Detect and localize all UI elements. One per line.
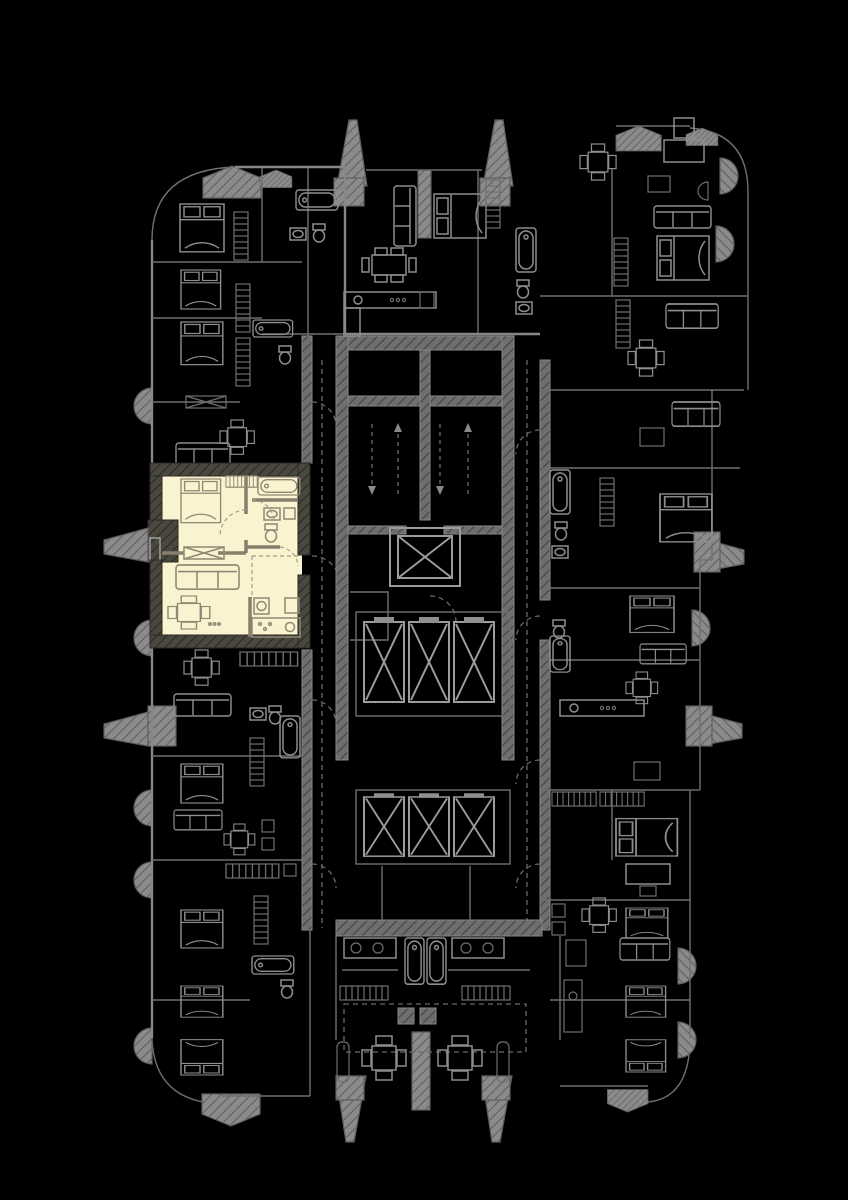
dining-table-icon bbox=[582, 898, 616, 932]
wardrobe-icon bbox=[340, 986, 388, 1000]
wardrobe-icon bbox=[600, 478, 614, 526]
elevator-icon bbox=[364, 617, 404, 702]
stove-burner bbox=[600, 706, 603, 709]
half-round-balcony-icon bbox=[720, 158, 738, 194]
door-swing-arc bbox=[516, 616, 540, 640]
balcony-fin-icon bbox=[483, 120, 513, 186]
stairwell-right bbox=[436, 423, 472, 495]
bed-icon bbox=[181, 322, 223, 365]
kitchen-sink-icon bbox=[354, 296, 362, 304]
sofa-icon bbox=[174, 694, 231, 716]
wardrobe-icon bbox=[552, 792, 596, 806]
stair-arrow-icon bbox=[368, 424, 376, 495]
kitchen-sink-icon bbox=[570, 704, 578, 712]
desk-chair-icon bbox=[640, 886, 656, 896]
corridor-wall bbox=[302, 650, 312, 930]
wardrobe-icon bbox=[600, 792, 644, 806]
washer-icon bbox=[262, 838, 274, 850]
sink-icon bbox=[351, 943, 361, 953]
wardrobe-icon bbox=[250, 738, 264, 786]
highlighted-apartment[interactable] bbox=[104, 463, 310, 648]
desk-icon bbox=[626, 864, 670, 884]
side-table-icon bbox=[640, 428, 664, 446]
kitchen-sink-icon bbox=[569, 992, 577, 1000]
sink-icon bbox=[483, 943, 493, 953]
kitchen-counter-icon bbox=[564, 980, 582, 1032]
corridor-wall bbox=[302, 336, 312, 463]
door-swing-arc bbox=[516, 864, 540, 888]
balcony-anchor-block bbox=[148, 520, 178, 562]
bed-icon bbox=[180, 204, 224, 252]
corridor-wall bbox=[540, 640, 550, 930]
core-bottom-wall bbox=[336, 920, 542, 936]
wardrobe-icon bbox=[234, 212, 248, 260]
bed-icon bbox=[630, 596, 674, 632]
bathtub-icon bbox=[405, 938, 424, 984]
bay-cap-icon bbox=[203, 166, 261, 198]
pier bbox=[418, 170, 431, 238]
balcony-fin-icon bbox=[104, 712, 148, 746]
half-round-balcony-icon bbox=[134, 1028, 152, 1064]
pier bbox=[398, 1008, 414, 1024]
sink-icon bbox=[516, 302, 532, 314]
sofa-icon bbox=[666, 304, 718, 328]
half-round-balcony-icon bbox=[134, 620, 152, 656]
sofa-icon bbox=[672, 402, 720, 426]
half-round-balcony-icon bbox=[678, 948, 696, 984]
elevator-icon bbox=[409, 617, 449, 702]
bathtub-icon bbox=[516, 228, 536, 272]
bay-cap-icon bbox=[260, 170, 292, 188]
fin-base bbox=[694, 532, 720, 572]
bay-cap-icon bbox=[607, 1090, 648, 1112]
toilet-icon bbox=[281, 980, 293, 998]
core-wall bbox=[336, 336, 514, 350]
half-round-balcony-icon bbox=[716, 226, 734, 262]
floor-plan-viewer bbox=[0, 0, 848, 1200]
door-swing-arc bbox=[312, 700, 336, 724]
bed-icon bbox=[181, 910, 223, 948]
apartment-wall-right bbox=[298, 463, 310, 555]
bed-icon bbox=[181, 1040, 223, 1075]
side-table-icon bbox=[648, 176, 670, 192]
sofa-icon bbox=[176, 443, 230, 465]
bathtub-icon bbox=[427, 938, 446, 984]
half-round-balcony-icon bbox=[678, 1022, 696, 1058]
wardrobe-icon bbox=[236, 338, 250, 386]
toilet-icon bbox=[279, 346, 291, 364]
half-round-balcony-icon bbox=[692, 610, 710, 646]
bathtub-icon bbox=[280, 716, 300, 758]
core-wall bbox=[336, 336, 348, 760]
bed-icon bbox=[181, 986, 223, 1017]
stove-burner bbox=[606, 706, 609, 709]
core-wall bbox=[502, 336, 514, 760]
toilet-icon bbox=[553, 620, 565, 638]
balcony-fin-icon bbox=[337, 120, 367, 186]
bathroom-counter-icon bbox=[344, 938, 396, 958]
toilet-icon bbox=[313, 224, 325, 242]
fin-base bbox=[482, 1076, 510, 1100]
toilet-icon bbox=[517, 280, 529, 298]
wardrobe-icon bbox=[254, 896, 268, 944]
toilet-icon bbox=[555, 522, 567, 540]
elevator-icon bbox=[454, 617, 494, 702]
stove-burner bbox=[402, 298, 405, 301]
bed-icon bbox=[616, 819, 677, 856]
half-round-balcony-icon bbox=[134, 862, 152, 898]
bathtub-icon bbox=[550, 470, 570, 514]
sink-icon bbox=[290, 228, 306, 240]
bed-icon bbox=[626, 986, 666, 1017]
service-shaft bbox=[390, 528, 460, 586]
apartment-wall-left bbox=[150, 560, 162, 638]
dining-table-icon bbox=[628, 340, 664, 376]
stove-burner bbox=[396, 298, 399, 301]
elevator-bank-upper bbox=[356, 612, 510, 716]
bed-icon bbox=[626, 908, 668, 938]
bay-cap-icon bbox=[202, 1094, 260, 1126]
dining-table-icon bbox=[224, 824, 255, 855]
elevator-icon bbox=[454, 793, 494, 856]
stove-burner bbox=[612, 706, 615, 709]
door-swing-arc bbox=[516, 430, 540, 454]
half-round-balcony-icon bbox=[134, 388, 152, 424]
sink-icon bbox=[373, 943, 383, 953]
stair-divider-wall bbox=[420, 350, 430, 520]
elevator-icon bbox=[364, 793, 404, 856]
bed-icon bbox=[657, 236, 709, 280]
sofa-icon bbox=[654, 206, 711, 228]
stair-arrow-icon bbox=[394, 423, 402, 494]
elevator-icon bbox=[409, 793, 449, 856]
floor-plan-svg bbox=[0, 0, 848, 1200]
wardrobe-icon bbox=[226, 864, 279, 878]
door-swing-arc bbox=[516, 760, 540, 784]
fin-base bbox=[336, 1076, 364, 1100]
apartments-right-column[interactable] bbox=[540, 300, 740, 1086]
chair-icon bbox=[698, 182, 708, 200]
washer-icon bbox=[552, 922, 565, 935]
washer-icon bbox=[284, 864, 296, 876]
sofa-icon bbox=[174, 810, 222, 830]
sink-icon bbox=[461, 943, 471, 953]
bay-cap-icon bbox=[616, 126, 661, 151]
corridor-wall bbox=[540, 360, 550, 600]
toilet-icon bbox=[269, 706, 281, 724]
kitchen-counter-icon bbox=[560, 700, 644, 716]
party-wall-pier bbox=[412, 1032, 430, 1110]
half-round-balcony-icon bbox=[134, 790, 152, 826]
kitchen-counter-icon bbox=[344, 308, 360, 336]
bed-icon bbox=[181, 764, 223, 803]
sink-icon bbox=[250, 708, 266, 720]
bathroom-counter-icon bbox=[452, 938, 504, 958]
wardrobe-icon bbox=[614, 238, 628, 286]
dining-table-icon bbox=[184, 650, 219, 685]
door-swing-arc bbox=[312, 864, 336, 888]
dining-table-icon bbox=[362, 248, 416, 282]
apartment-wall-top bbox=[150, 463, 310, 476]
washer-icon bbox=[262, 820, 274, 832]
bathtub-icon bbox=[550, 636, 570, 672]
bathtub-icon bbox=[296, 190, 338, 210]
stair-arrow-icon bbox=[464, 423, 472, 494]
dining-table-icon bbox=[626, 672, 658, 704]
wardrobe-icon bbox=[616, 300, 630, 348]
bed-icon bbox=[181, 270, 221, 309]
bay-cap-icon bbox=[686, 128, 718, 146]
dining-table-icon bbox=[362, 1036, 406, 1080]
sink-icon bbox=[552, 546, 568, 558]
washer-icon bbox=[552, 904, 565, 917]
sofa-icon bbox=[620, 938, 670, 960]
side-table-icon bbox=[634, 762, 660, 780]
stove-burner bbox=[390, 298, 393, 301]
door-swing-arc bbox=[312, 402, 336, 426]
central-core bbox=[336, 336, 542, 936]
fridge-icon bbox=[566, 940, 586, 966]
balcony-fin-icon bbox=[104, 528, 148, 562]
bed-icon bbox=[626, 1040, 666, 1072]
apartments-bottom-center[interactable] bbox=[336, 936, 586, 1082]
wardrobe-icon bbox=[240, 652, 298, 666]
elevator-bank-lower bbox=[356, 790, 510, 864]
dining-table-icon bbox=[438, 1036, 482, 1080]
fin-base bbox=[686, 706, 712, 746]
sofa-icon bbox=[394, 186, 416, 246]
stair-arrow-icon bbox=[436, 424, 444, 495]
dining-table-icon bbox=[580, 144, 616, 180]
bathtub-icon bbox=[252, 956, 294, 974]
wardrobe-icon bbox=[236, 284, 250, 332]
pier bbox=[420, 1008, 436, 1024]
wardrobe-icon bbox=[462, 986, 510, 1000]
stairwell-left bbox=[368, 423, 402, 495]
sofa-icon bbox=[640, 644, 686, 664]
washer-icon bbox=[420, 292, 434, 308]
